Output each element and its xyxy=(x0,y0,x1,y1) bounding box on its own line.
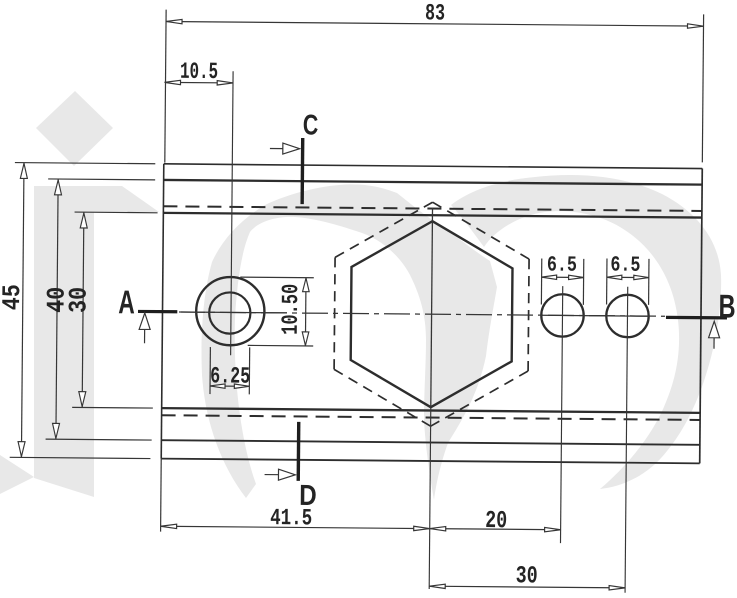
svg-text:30: 30 xyxy=(516,563,538,590)
svg-text:B: B xyxy=(718,288,735,325)
svg-text:6.5: 6.5 xyxy=(547,254,577,278)
svg-text:C: C xyxy=(303,109,319,141)
svg-text:83: 83 xyxy=(425,0,445,26)
svg-text:20: 20 xyxy=(485,508,507,535)
svg-text:A: A xyxy=(118,283,135,320)
svg-text:6.25: 6.25 xyxy=(210,363,250,389)
svg-text:10.5: 10.5 xyxy=(180,59,218,85)
svg-text:10.50: 10.50 xyxy=(278,284,304,335)
svg-text:30: 30 xyxy=(64,287,93,313)
svg-text:D: D xyxy=(299,480,317,512)
svg-text:6.5: 6.5 xyxy=(610,254,640,278)
svg-text:45: 45 xyxy=(0,284,27,310)
